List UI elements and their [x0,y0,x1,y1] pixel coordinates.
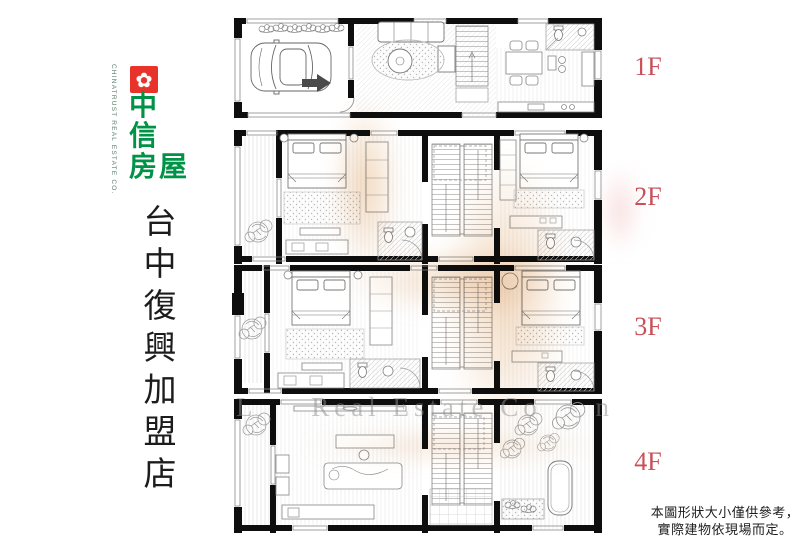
floor-plan-4f [232,397,604,533]
bath-right-2f [538,230,594,260]
floor-plan-2f [232,128,604,264]
floor-label-4f: 4F [630,447,666,477]
stairs-1f [456,26,488,86]
flower-logo-icon: ✿ [136,70,153,90]
disclaimer-line-2: 實際建物依現場而定。 [650,521,800,538]
logo-char-2: 信 [129,122,157,150]
bath-right-3f [538,363,594,391]
floorplan-sheet: CHINATRUST REAL ESTATE CO. ✿ 中 信 房屋 台中復興… [0,0,800,553]
disclaimer-line-1: 本圖形狀大小僅供參考， [650,504,800,521]
floor-label-1f: 1F [630,52,666,82]
stairs-3f [432,277,492,369]
logo-char-1: 中 [129,92,157,120]
store-name-vertical: 台中復興加盟店 [132,204,180,498]
logo-char-3: 房屋 [129,153,189,181]
floor-label-2f: 2F [630,182,666,212]
bath-left-2f [378,222,422,260]
brand-logo: ✿ [130,66,158,93]
hedge-plants [259,24,344,33]
brand-english-vertical: CHINATRUST REAL ESTATE CO. [110,64,117,204]
floor-plan-1f [232,16,604,124]
floor-plan-3f [232,263,604,396]
living-room-furniture [372,22,455,80]
floor-label-3f: 3F [630,312,666,342]
bath-1f [546,24,594,50]
disclaimer: 本圖形狀大小僅供參考， 實際建物依現場而定。 [650,504,800,538]
stairs-2f [432,144,492,236]
